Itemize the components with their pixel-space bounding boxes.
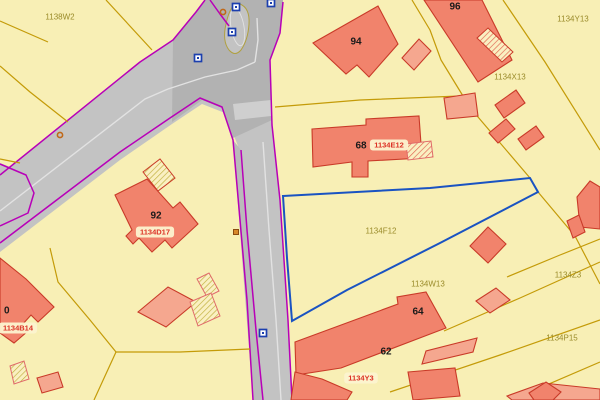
address-label-1134D17: 1134D17 <box>140 228 170 237</box>
annex-68 <box>406 141 433 160</box>
house-number-62: 62 <box>380 347 392 358</box>
house-number-92: 92 <box>150 211 162 222</box>
survey-point-dot-1 <box>270 2 272 4</box>
survey-point-dot-4 <box>262 332 264 334</box>
survey-point-dot-2 <box>231 31 233 33</box>
address-label-1134E12: 1134E12 <box>374 141 404 150</box>
parcel-id-label-1134X13: 1134X13 <box>494 73 526 82</box>
parcel-id-label-1134W13: 1134W13 <box>411 280 445 289</box>
house-number-0: 0 <box>4 306 10 317</box>
survey-point-dot-0 <box>235 6 237 8</box>
parcel-id-label-1134P15: 1134P15 <box>546 334 578 343</box>
parcel-id-label-1138W2: 1138W2 <box>45 13 75 22</box>
parcel-id-label-1134F12: 1134F12 <box>366 227 398 236</box>
house-number-94: 94 <box>350 37 362 48</box>
address-label-1134Y3: 1134Y3 <box>348 374 373 383</box>
address-label-1134B14: 1134B14 <box>3 324 34 333</box>
map-viewport[interactable]: 1138W21134Y131134X131134F121134W131134Z3… <box>0 0 600 400</box>
utility-marker-0 <box>234 230 239 235</box>
house-number-96: 96 <box>449 2 461 13</box>
house-number-68: 68 <box>355 141 367 152</box>
house-number-64: 64 <box>412 307 424 318</box>
parcel-id-label-1134Y13: 1134Y13 <box>557 15 589 24</box>
survey-point-dot-3 <box>197 57 199 59</box>
parcel-id-label-1134Z3: 1134Z3 <box>555 271 582 280</box>
building-bottom <box>408 368 460 400</box>
cadastral-map-canvas[interactable]: 1138W21134Y131134X131134F121134W131134Z3… <box>0 0 600 400</box>
building-68-neighbor <box>444 93 478 119</box>
